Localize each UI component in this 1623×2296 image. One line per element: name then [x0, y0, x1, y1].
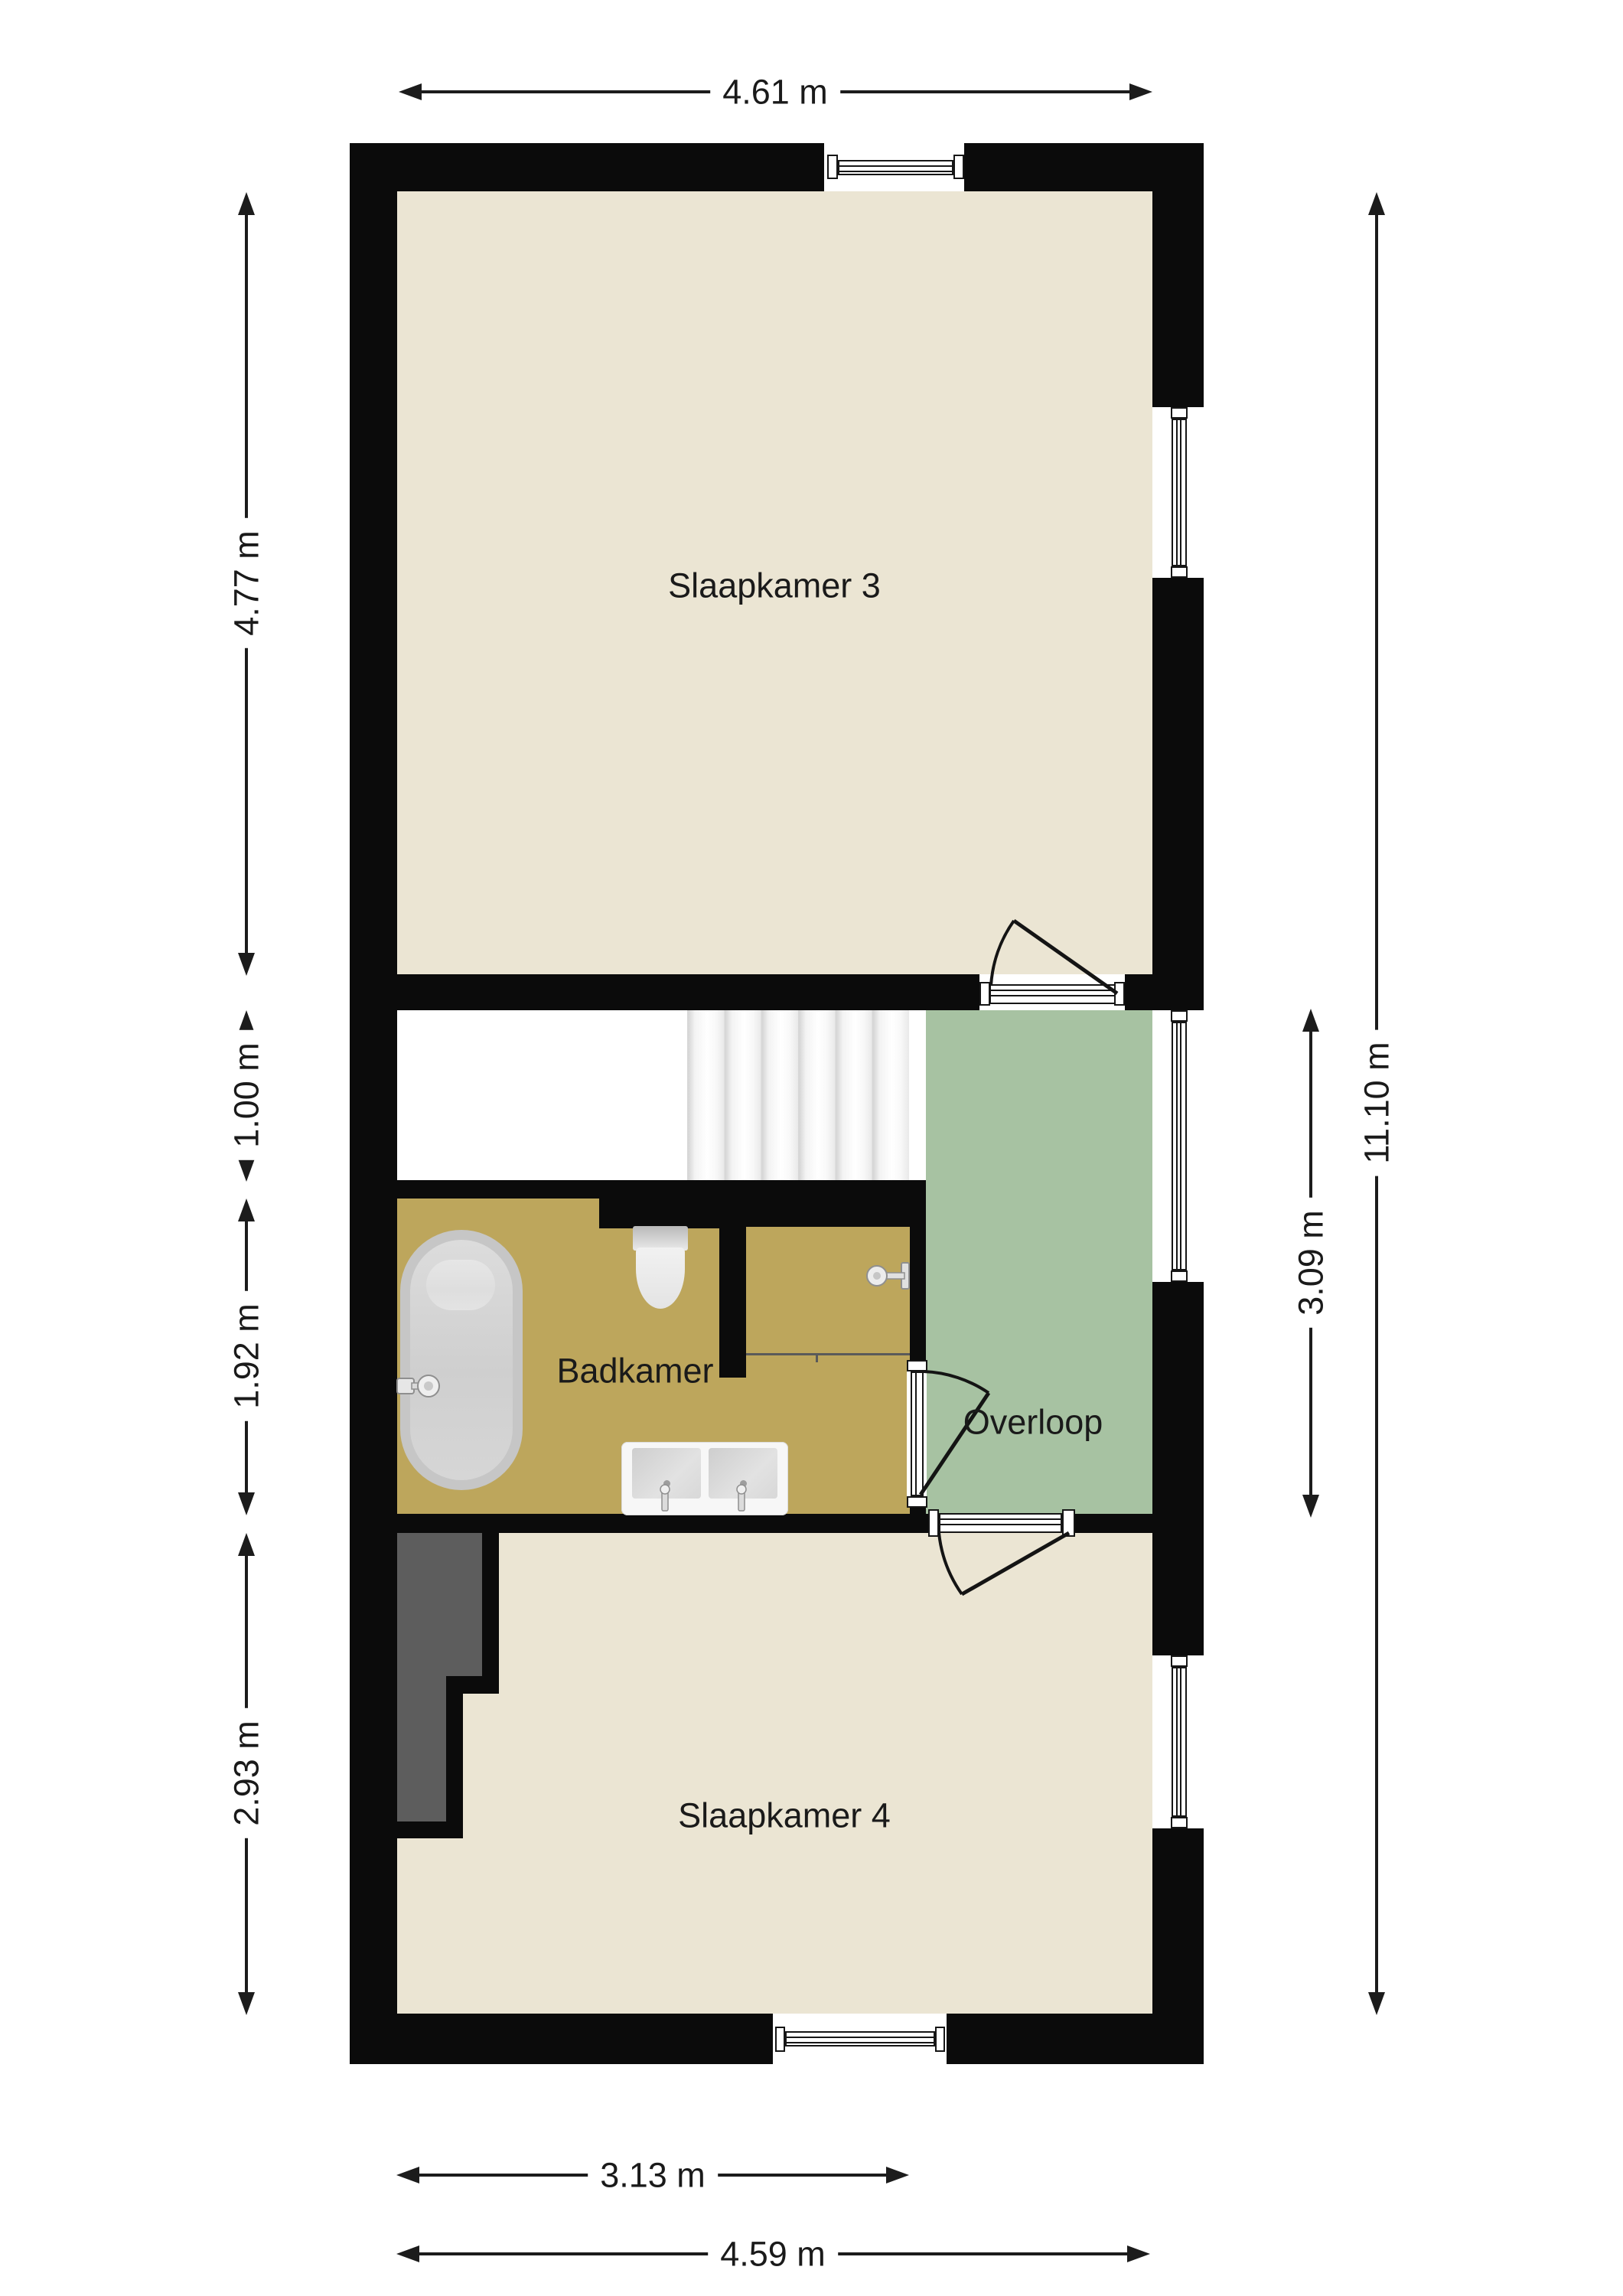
wall-closet-1 — [482, 1533, 499, 1694]
wall-left — [350, 143, 397, 2064]
window-icon — [1171, 1817, 1188, 1828]
shower-area-line — [816, 1355, 818, 1362]
dimension-label: 3.09 m — [1290, 1198, 1331, 1328]
wall-sk4-top-left — [397, 1514, 928, 1533]
window-icon — [1172, 419, 1187, 566]
wall-top-left — [350, 143, 824, 191]
wall-badkamer-overloop — [910, 1180, 926, 1360]
wall-badkamer-top — [397, 1180, 599, 1199]
wall-sk3-bottom-right — [1125, 974, 1152, 1010]
dimension-label: 2.93 m — [226, 1708, 267, 1838]
closet-floor — [397, 1676, 446, 1823]
door-jamb — [979, 982, 990, 1006]
door-leaf — [911, 1371, 924, 1496]
staircase-icon — [687, 1010, 909, 1180]
wall-closet-4 — [397, 1821, 463, 1838]
wall-right-4 — [1152, 1828, 1204, 2064]
wall-right-2 — [1152, 578, 1204, 1010]
window-icon — [775, 2027, 785, 2052]
window-icon — [1171, 1655, 1188, 1667]
window-icon — [1171, 1010, 1188, 1022]
wall-right-1 — [1152, 143, 1204, 407]
window-icon — [785, 2031, 935, 2047]
closet-floor — [397, 1533, 482, 1676]
door-jamb — [1114, 982, 1125, 1006]
window-icon — [838, 160, 953, 175]
wall-closet-2 — [446, 1676, 499, 1694]
window-icon — [1171, 407, 1188, 419]
room-label-overloop: Overloop — [963, 1403, 1103, 1441]
dimension-label: 3.13 m — [588, 2154, 718, 2196]
wall-toilet-niche-side — [719, 1180, 746, 1378]
window-icon — [1172, 1667, 1187, 1817]
room-label-slaapkamer4: Slaapkamer 4 — [678, 1796, 891, 1835]
window-icon — [1172, 1022, 1187, 1270]
dimension-label: 1.92 m — [226, 1291, 267, 1421]
room-slaapkamer4-floor — [397, 1533, 1152, 2014]
dimension-label: 11.10 m — [1356, 1029, 1397, 1176]
wall-shower-top — [746, 1180, 911, 1227]
door-jamb — [1062, 1509, 1075, 1537]
bathtub-icon — [400, 1230, 523, 1490]
window-icon — [953, 155, 964, 179]
door-sill — [939, 1513, 1062, 1533]
shower-area-line — [746, 1353, 910, 1355]
window-icon — [1171, 1270, 1188, 1282]
room-label-badkamer: Badkamer — [556, 1352, 713, 1390]
wall-sk3-bottom-left — [397, 974, 979, 1010]
window-icon — [935, 2027, 945, 2052]
wall-toilet-niche — [599, 1180, 719, 1228]
door-jamb — [928, 1509, 939, 1537]
dimension-label: 4.77 m — [226, 518, 267, 648]
wall-sk4-top-right — [1075, 1514, 1152, 1533]
window-icon — [1171, 566, 1188, 578]
door-jamb — [907, 1360, 927, 1371]
dimension-label: 1.00 m — [226, 1030, 267, 1160]
door-sill — [989, 984, 1116, 1004]
double-sink-icon — [621, 1442, 788, 1515]
dimension-label: 4.59 m — [708, 2233, 838, 2275]
dimension-label: 4.61 m — [710, 71, 840, 113]
door-jamb — [907, 1496, 927, 1508]
window-icon — [827, 155, 838, 179]
wall-right-3 — [1152, 1282, 1204, 1655]
room-label-slaapkamer3: Slaapkamer 3 — [668, 566, 881, 605]
wall-bottom-left — [350, 2014, 773, 2064]
wall-closet-3 — [446, 1694, 463, 1838]
floor-plan: Slaapkamer 3 Badkamer Overloop Slaapkame… — [0, 0, 1623, 2296]
